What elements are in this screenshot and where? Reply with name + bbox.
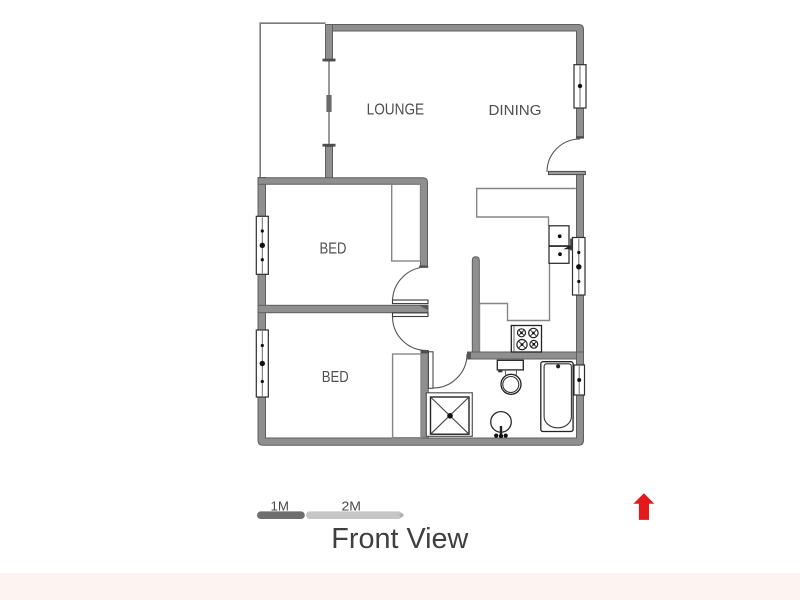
svg-text:BED: BED	[320, 241, 347, 258]
svg-text:1M: 1M	[271, 498, 290, 513]
svg-text:Front View: Front View	[331, 523, 468, 555]
svg-text:LOUNGE: LOUNGE	[367, 101, 425, 118]
svg-text:2M: 2M	[342, 498, 362, 513]
svg-text:DINING: DINING	[489, 102, 542, 119]
svg-text:BED: BED	[322, 369, 349, 386]
